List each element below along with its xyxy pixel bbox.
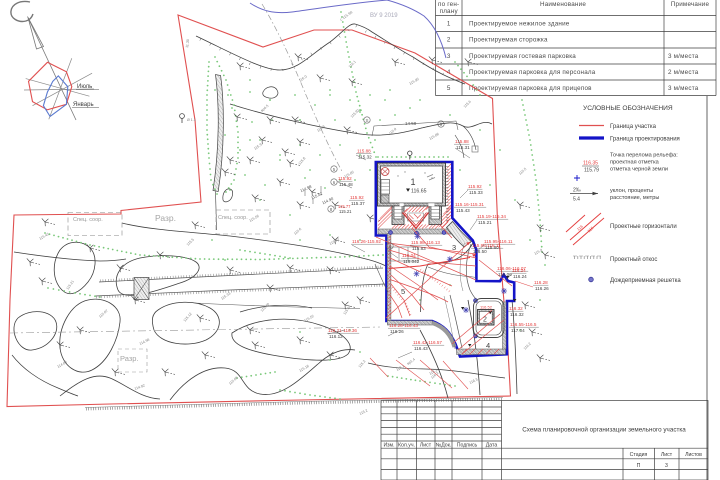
svg-text:115.83: 115.83: [412, 246, 426, 251]
svg-text:115.5: 115.5: [186, 238, 195, 247]
svg-text:УСЛОВНЫЕ ОБОЗНАЧЕНИЯ: УСЛОВНЫЕ ОБОЗНАЧЕНИЯ: [583, 105, 673, 112]
svg-text:115.33: 115.33: [469, 190, 483, 195]
svg-text:116.28: 116.28: [534, 280, 548, 285]
svg-text:1: 1: [410, 177, 415, 187]
svg-text:115.05: 115.05: [228, 376, 239, 386]
svg-text:ВУ 9 2019: ВУ 9 2019: [370, 13, 398, 19]
svg-text:2 м/места: 2 м/места: [668, 69, 699, 76]
svg-text:116.43: 116.43: [414, 346, 428, 351]
svg-text:115.88: 115.88: [357, 149, 371, 154]
svg-text:5: 5: [447, 85, 451, 92]
svg-text:Проектируемая парковка для пер: Проектируемая парковка для персонала: [469, 69, 596, 76]
svg-text:115.88: 115.88: [455, 139, 469, 144]
svg-text:8: 8: [330, 207, 333, 212]
svg-text:115.33: 115.33: [220, 291, 231, 300]
svg-text:115.21: 115.21: [339, 209, 352, 214]
svg-text:Листов: Листов: [685, 452, 702, 458]
svg-text:114.90: 114.90: [321, 196, 335, 206]
svg-text:115.9: 115.9: [388, 127, 397, 136]
svg-text:5: 5: [333, 167, 336, 172]
svg-text:115.64: 115.64: [343, 304, 352, 315]
svg-text:115.92: 115.92: [468, 184, 482, 189]
svg-text:115.43: 115.43: [39, 232, 50, 241]
svg-text:Январь: Январь: [73, 102, 94, 108]
svg-text:115.07: 115.07: [98, 309, 109, 319]
svg-text:Проектный откос: Проектный откос: [610, 256, 657, 263]
svg-text:114.88: 114.88: [57, 360, 68, 369]
svg-text:Проектируемая гостевая парковк: Проектируемая гостевая парковка: [469, 53, 576, 60]
svg-text:116.3: 116.3: [469, 378, 479, 385]
svg-text:по ген-: по ген-: [438, 1, 459, 8]
svg-text:116.35: 116.35: [583, 161, 598, 167]
svg-text:3: 3: [452, 243, 456, 252]
svg-text:116.24: 116.24: [513, 274, 527, 279]
svg-text:116.28-116.43: 116.28-116.43: [389, 323, 418, 328]
svg-text:Схема планировочной организаци: Схема планировочной организации земельно…: [522, 426, 686, 434]
svg-text:Изм.: Изм.: [383, 443, 394, 449]
svg-text:115.40: 115.40: [260, 302, 270, 312]
svg-text:116.04: 116.04: [402, 253, 416, 258]
svg-text:Кол.уч.: Кол.уч.: [398, 443, 415, 449]
svg-text:11.30: 11.30: [185, 39, 190, 48]
svg-text:4: 4: [486, 341, 490, 350]
svg-text:Точка перелома рельефа:: Точка перелома рельефа:: [610, 153, 678, 159]
svg-text:114.92: 114.92: [134, 384, 145, 391]
svg-text:114.98: 114.98: [299, 183, 313, 193]
svg-text:116.55-116.5: 116.55-116.5: [510, 322, 537, 327]
svg-text:115.72: 115.72: [329, 238, 340, 246]
svg-text:6: 6: [333, 180, 336, 185]
svg-text:115.9: 115.9: [534, 248, 544, 256]
svg-text:115.21: 115.21: [66, 279, 75, 290]
svg-text:9: 9: [440, 122, 443, 127]
svg-text:Разр.: Разр.: [155, 213, 176, 223]
svg-text:115.37: 115.37: [351, 201, 365, 206]
svg-text:115.88: 115.88: [429, 132, 440, 141]
svg-text:116.32: 116.32: [510, 312, 524, 317]
svg-text:116.50: 116.50: [473, 249, 487, 254]
svg-text:116: 116: [586, 225, 595, 233]
svg-text:115.98-116.11: 115.98-116.11: [472, 243, 501, 248]
svg-text:Разр.: Разр.: [120, 354, 139, 363]
svg-text:2‰: 2‰: [573, 188, 581, 194]
svg-text:115.52: 115.52: [304, 314, 315, 323]
svg-text:5: 5: [389, 244, 392, 249]
svg-text:Граница участка: Граница участка: [610, 124, 657, 130]
svg-text:Июль: Июль: [77, 84, 92, 90]
svg-text:115.18: 115.18: [299, 364, 310, 373]
svg-text:115.98-116.13: 115.98-116.13: [411, 240, 440, 245]
svg-text:115.21: 115.21: [478, 220, 492, 225]
svg-text:Спец. соор.: Спец. соор.: [73, 217, 103, 223]
svg-text:115.2: 115.2: [359, 409, 369, 416]
svg-text:Проектные горизонтали: Проектные горизонтали: [610, 224, 677, 230]
svg-text:уклон, проценты: уклон, проценты: [610, 188, 653, 194]
svg-text:Лист: Лист: [661, 452, 673, 458]
svg-text:114.96: 114.96: [139, 338, 150, 346]
svg-text:Примечание: Примечание: [671, 1, 710, 8]
svg-text:116.06: 116.06: [498, 272, 512, 277]
svg-text:116.042: 116.042: [403, 259, 420, 264]
svg-text:115.56: 115.56: [249, 214, 260, 223]
svg-text:Наименование: Наименование: [540, 1, 586, 8]
svg-text:115.6: 115.6: [463, 100, 472, 109]
svg-text:1: 1: [447, 21, 451, 28]
svg-text:116.26: 116.26: [535, 286, 549, 291]
svg-text:115.43: 115.43: [456, 208, 470, 213]
svg-text:Проектируемая парковка для при: Проектируемая парковка для прицепов: [469, 85, 592, 92]
svg-text:115.92: 115.92: [350, 195, 364, 200]
svg-text:Стадия: Стадия: [630, 452, 648, 458]
svg-text:3 м/места: 3 м/места: [668, 85, 699, 92]
svg-text:116.0: 116.0: [298, 75, 307, 83]
svg-text:115.31: 115.31: [456, 145, 470, 150]
svg-text:116.32: 116.32: [509, 306, 523, 311]
svg-text:116.42-116.57: 116.42-116.57: [413, 340, 442, 345]
svg-text:5.4: 5.4: [573, 197, 580, 203]
svg-text:Проектируемое нежилое здание: Проектируемое нежилое здание: [469, 21, 570, 28]
svg-text:115.8: 115.8: [298, 156, 307, 165]
svg-text:3: 3: [665, 463, 668, 469]
svg-text:115.48: 115.48: [339, 182, 353, 187]
svg-text:расстояние, метры: расстояние, метры: [610, 195, 659, 201]
svg-text:проектная отметка: проектная отметка: [610, 160, 660, 166]
svg-text:115.12: 115.12: [183, 312, 193, 323]
svg-text:115.3: 115.3: [358, 359, 367, 368]
svg-text:S: S: [365, 118, 368, 123]
svg-text:117.04: 117.04: [511, 328, 525, 333]
svg-text:Дождеприемная решетка: Дождеприемная решетка: [610, 278, 681, 284]
svg-text:116.1: 116.1: [348, 60, 357, 69]
svg-text:вр4.5: вр4.5: [260, 104, 269, 113]
svg-text:14.58: 14.58: [405, 121, 417, 126]
svg-text:116.26-115.92: 116.26-115.92: [352, 239, 381, 244]
svg-text:вр1.4: вр1.4: [406, 357, 416, 365]
svg-text:3: 3: [447, 53, 451, 60]
svg-text:Дата: Дата: [486, 443, 498, 449]
svg-text:116.52: 116.52: [480, 305, 493, 310]
svg-text:115.79: 115.79: [584, 168, 599, 174]
svg-text:116.24: 116.24: [512, 268, 526, 273]
svg-text:116.65: 116.65: [411, 189, 427, 195]
svg-text:115.16-115.31: 115.16-115.31: [455, 202, 484, 207]
svg-text:115.5: 115.5: [518, 167, 527, 176]
svg-text:№Док.: №Док.: [436, 443, 452, 449]
svg-text:Граница проектирования: Граница проектирования: [610, 137, 680, 143]
svg-text:Проектируемая сторожка: Проектируемая сторожка: [469, 37, 548, 44]
svg-text:115.6: 115.6: [293, 227, 302, 236]
svg-text:плану: плану: [440, 8, 459, 15]
svg-text:Ø 1.1: Ø 1.1: [187, 118, 196, 122]
svg-text:116: 116: [576, 223, 585, 231]
svg-text:отметка черной земли: отметка черной земли: [610, 166, 668, 173]
svg-text:115.9: 115.9: [253, 143, 262, 151]
svg-text:115.92: 115.92: [350, 108, 360, 118]
svg-text:116.12: 116.12: [329, 334, 343, 339]
svg-text:3 м/места: 3 м/места: [668, 53, 699, 60]
svg-text:116.2: 116.2: [523, 342, 532, 351]
svg-text:2: 2: [447, 37, 451, 44]
svg-text:Лист: Лист: [420, 443, 432, 449]
svg-text:115.95: 115.95: [409, 77, 420, 86]
svg-text:П: П: [637, 463, 641, 469]
svg-text:116.1: 116.1: [396, 364, 406, 372]
svg-text:Подпись: Подпись: [457, 443, 478, 449]
svg-text:Спец. соор.: Спец. соор.: [218, 215, 248, 221]
svg-text:115.19-115.34: 115.19-115.34: [477, 214, 506, 219]
